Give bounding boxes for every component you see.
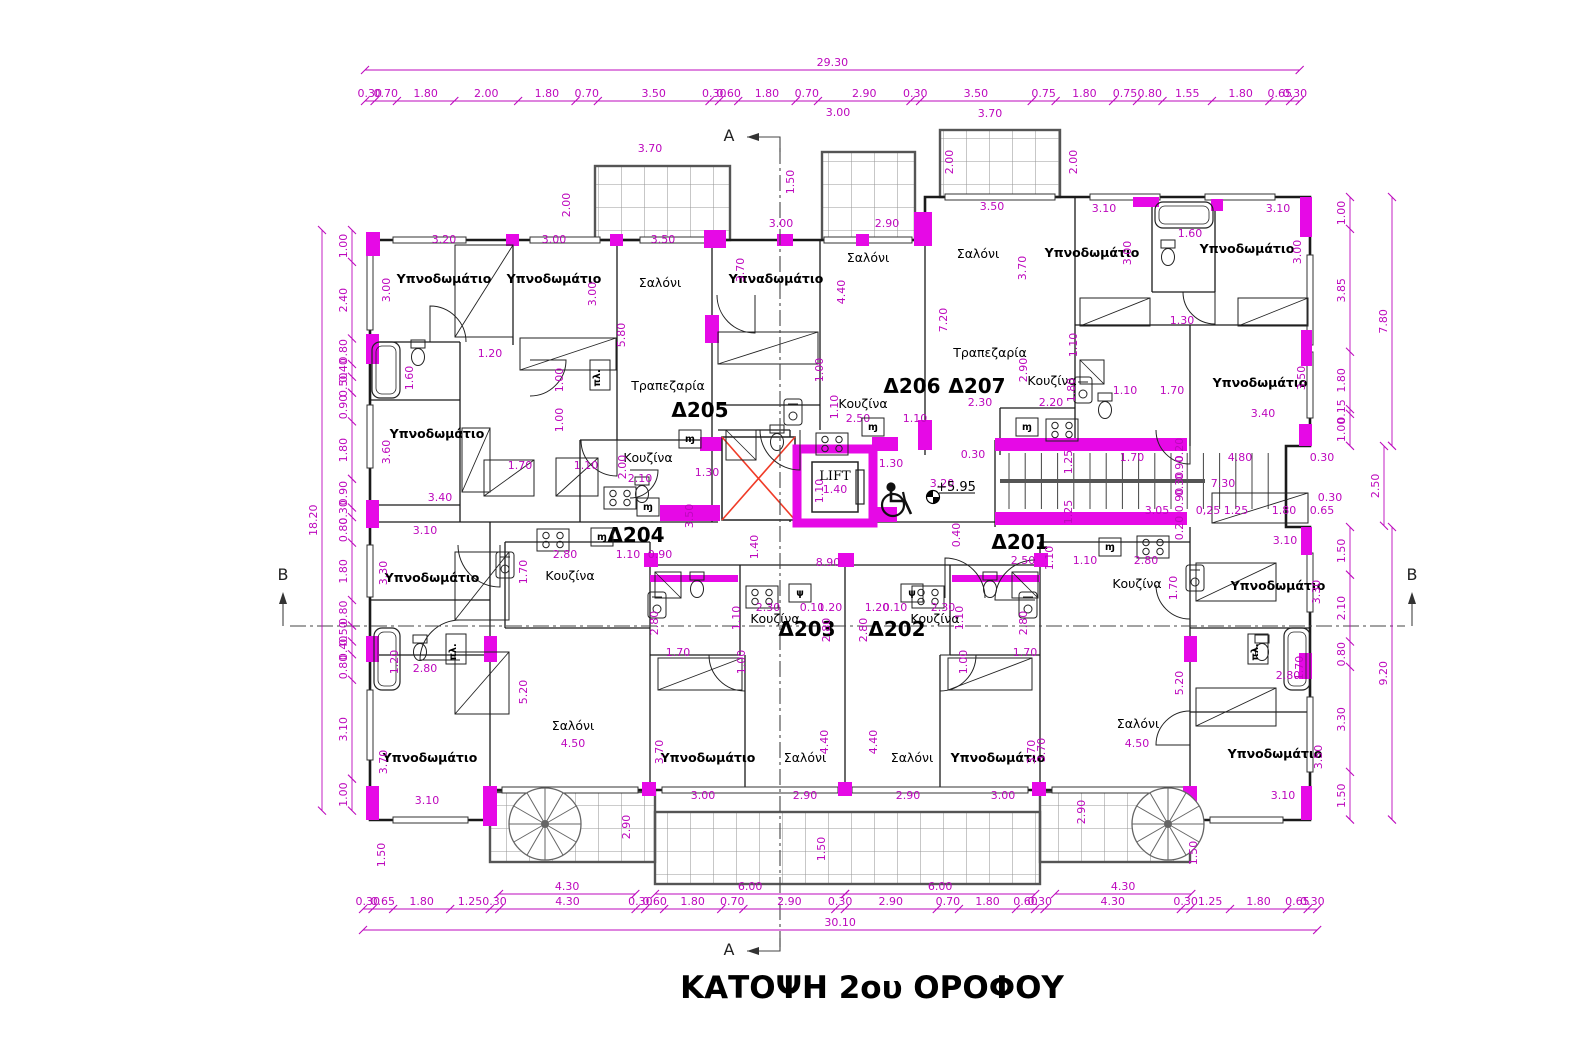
dimension-label: 1.70 (517, 560, 530, 585)
dimension-label: 4.40 (867, 730, 880, 755)
chain-dimension: 0.30 (1028, 895, 1053, 908)
dimension-label: 2.30 (968, 396, 993, 409)
dimension-label: 3.30 (1310, 580, 1323, 605)
chain-dimension: 0.70 (574, 87, 599, 100)
room-label: Υπνοδωμάτιο (382, 750, 478, 765)
chain-dimension: 3.50 (964, 87, 989, 100)
chain-dimension: 0.30 (482, 895, 507, 908)
dimension-label: 8.90 (816, 556, 841, 569)
dimension-label: 1.10 (574, 459, 599, 472)
chain-dimension: 1.00 (337, 234, 350, 259)
chain-dimension: 0.50 (337, 372, 350, 397)
dimension-label: 4.40 (818, 730, 831, 755)
dimension-label: 0.30 (961, 448, 986, 461)
chain-dimension: 1.25 (458, 895, 483, 908)
chain-dimension: 1.80 (680, 895, 705, 908)
chain-dimension: 0.60 (716, 87, 741, 100)
dimension-label: 2.80 (553, 548, 578, 561)
chain-dimension: 0.70 (936, 895, 961, 908)
dimension-label: 4.40 (835, 280, 848, 305)
dimension-label: 2.80 (413, 662, 438, 675)
room-label: Σαλόνι (957, 246, 999, 261)
fixture-glyph: ψ (908, 588, 916, 599)
dimension-label: 2.80 (857, 618, 870, 643)
dimension-label: 1.70 (1293, 656, 1306, 681)
dimension-label: 1.10 (1043, 546, 1056, 571)
chain-dimension: 0.70 (720, 895, 745, 908)
section-a-bottom-leader (747, 938, 780, 951)
balcony-bottom-middle (655, 812, 1040, 884)
dimension-label: 0.40 (950, 523, 963, 548)
unit-label: Δ204 (607, 523, 664, 547)
chain-dimension: 1.80 (535, 87, 560, 100)
dimension-label: 1.40 (748, 535, 761, 560)
dimension-label: 2.00 (943, 150, 956, 175)
room-label: Κουζίνα (1112, 576, 1161, 591)
chain-dimension: 2.10 (1335, 596, 1348, 621)
dimension-label: 1.10 (1113, 384, 1138, 397)
dimension-label: 1.60 (1178, 227, 1203, 240)
dimension-label: 1.50 (1187, 841, 1200, 866)
chain-dimension: 6.00 (738, 880, 763, 893)
chain-dimension: 3.85 (1335, 278, 1348, 303)
chain-dimension: 0.75 (1031, 87, 1056, 100)
dimension-label: 2.90 (875, 217, 900, 230)
dimension-label: 3.10 (1271, 789, 1296, 802)
dimension-label: 2.90 (793, 789, 818, 802)
chain-dimension: 1.80 (1072, 87, 1097, 100)
unit-label: Δ207 (948, 374, 1005, 398)
dimension-label: 5.80 (615, 323, 628, 348)
dimension-label: 3.00 (1291, 240, 1304, 265)
room-label: Τραπεζαρία (952, 345, 1027, 360)
chain-dimension: 1.55 (1175, 87, 1200, 100)
section-marker-b: B (1407, 565, 1418, 584)
dimension-label: 1.00 (553, 408, 566, 433)
dimension-label: 0.30 (1318, 491, 1343, 504)
chain-dimension: 1.00 (1335, 201, 1348, 226)
dimension-label: 1.10 (903, 412, 928, 425)
dimension-label: 7.20 (937, 308, 950, 333)
dimension-label: 1.50 (784, 170, 797, 195)
dimension-label: 3.00 (691, 789, 716, 802)
balcony-top-middle (822, 152, 915, 240)
chain-dimension: 4.30 (1100, 895, 1125, 908)
dimension-label: 3.00 (1121, 241, 1134, 266)
chain-dimension: 1.00 (337, 782, 350, 807)
dimension-label: 2.90 (1017, 358, 1030, 383)
fixture-glyph: πλ. (448, 643, 459, 660)
dimension-label: 1.20 (388, 650, 401, 675)
dimension-label: 0.20 (1173, 516, 1186, 541)
balcony-top-left (595, 166, 730, 240)
room-label: Υπνοδωμάτιο (389, 426, 485, 441)
chain-dimension: 0.80 (1335, 642, 1348, 667)
chain-dimension: 0.90 (337, 395, 350, 420)
room-label: Υπνοδωμάτιο (396, 271, 492, 286)
chain-dimension: 7.80 (1377, 309, 1390, 334)
dimension-label: 1.50 (375, 843, 388, 868)
chain-dimension: 18.20 (307, 505, 320, 537)
dimension-label: 3.50 (683, 504, 696, 529)
dimension-label: 2.80 (1134, 554, 1159, 567)
fixture-glyph: ɱ (597, 532, 607, 543)
dimension-label: 1.20 (478, 347, 503, 360)
dimension-label: 4.50 (561, 737, 586, 750)
chain-dimension: 0.80 (1137, 87, 1162, 100)
dimension-label: 3.70 (978, 107, 1003, 120)
dimension-label: 1.10 (730, 606, 743, 631)
chain-dimension: 3.30 (1335, 707, 1348, 732)
dimension-label: 4.50 (1125, 737, 1150, 750)
chain-dimension: 9.20 (1377, 661, 1390, 686)
chain-dimension: 0.70 (373, 87, 398, 100)
fixture-glyph: ɱ (643, 502, 653, 513)
dimension-label: 2.90 (620, 815, 633, 840)
dimension-label: 1.30 (695, 466, 720, 479)
section-marker-a: A (724, 126, 735, 145)
room-label: Κουζίνα (623, 450, 672, 465)
dimension-label: 1.25 (1224, 504, 1249, 517)
fixture-glyph: ɱ (1105, 542, 1115, 553)
dimension-label: 5.20 (517, 680, 530, 705)
chain-dimension: 0.80 (337, 518, 350, 543)
dimension-label: 1.00 (735, 650, 748, 675)
dimension-label: 1.80 (1272, 504, 1297, 517)
chain-dimension: 1.80 (413, 87, 438, 100)
dimension-label: 3.30 (377, 561, 390, 586)
chain-dimension: 1.00 (1335, 418, 1348, 443)
chain-dimension: 0.60 (642, 895, 667, 908)
dimension-label: 1.70 (1120, 451, 1145, 464)
drawing-sheet: 29.300.300.701.802.001.800.703.500.300.6… (0, 0, 1595, 1045)
dimension-label: 3.70 (653, 740, 666, 765)
dimension-label: 1.10 (616, 548, 641, 561)
dimension-label: 3.70 (377, 750, 390, 775)
chain-dimension: 4.30 (555, 880, 580, 893)
dimension-label: 3.00 (380, 278, 393, 303)
chain-dimension: 1.80 (1335, 368, 1348, 393)
drawing-title: ΚΑΤΟΨΗ 2ου ΟΡΟΦΟΥ (680, 970, 1064, 1006)
chain-dimension: 4.30 (1111, 880, 1136, 893)
dimension-label: 2.80 (1017, 611, 1030, 636)
dimension-label: 7.30 (1211, 477, 1236, 490)
dimension-label: 1.50 (815, 837, 828, 862)
dimension-label: 1.25 (1062, 450, 1075, 475)
room-label: Υπνοδωμάτιο (384, 570, 480, 585)
section-marker-a: A (724, 940, 735, 959)
dimension-label: 3.10 (413, 524, 438, 537)
dimension-label: 3.50 (980, 200, 1005, 213)
chain-dimension: 0.75 (1113, 87, 1138, 100)
dimension-label: 3.70 (734, 258, 747, 283)
dimension-label: 3.00 (991, 789, 1016, 802)
room-label: Κουζίνα (545, 568, 594, 583)
room-label: Σαλόνι (639, 275, 681, 290)
dimension-label: 2.80 (648, 611, 661, 636)
chain-dimension: 2.50 (1369, 474, 1382, 499)
floor-plan-svg: 29.300.300.701.802.001.800.703.500.300.6… (0, 0, 1595, 1045)
dimension-label: 2.90 (1075, 800, 1088, 825)
fixture-glyph: ɱ (685, 434, 695, 445)
dimension-label: 3.60 (380, 440, 393, 465)
chain-dimension: 0.30 (828, 895, 853, 908)
dimension-label: 3.10 (1092, 202, 1117, 215)
fixture-glyph: πλ. (1250, 643, 1261, 660)
dimension-label: 2.90 (896, 789, 921, 802)
chain-dimension: 1.80 (975, 895, 1000, 908)
level-value: +5.95 (936, 480, 976, 495)
dimension-label: 3.70 (1035, 738, 1048, 763)
dimension-label: 1.70 (1160, 384, 1185, 397)
dimension-label: 1.30 (1170, 314, 1195, 327)
dimension-label: 2.00 (1067, 150, 1080, 175)
chain-dimension: 0.65 (371, 895, 396, 908)
room-label: Κουζίνα (838, 396, 887, 411)
room-label: Σαλόνι (847, 250, 889, 265)
room-label: Υπνοδωμάτιο (660, 750, 756, 765)
dimension-label: 2.10 (628, 472, 653, 485)
dimension-label: 1.00 (553, 368, 566, 393)
chain-dimension: 0.70 (795, 87, 820, 100)
lift-dimension: 1.40 (823, 483, 848, 496)
dimension-label: 0,25 (1196, 504, 1221, 517)
chain-dimension: 1.80 (409, 895, 434, 908)
dimension-label: 1.00 (813, 358, 826, 383)
chain-dimension: 1.50 (1335, 783, 1348, 808)
dimension-label: 1.10 (828, 395, 841, 420)
chain-dimension: 0.80 (337, 655, 350, 680)
dimension-label: 1.10 (1073, 554, 1098, 567)
chain-dimension: 4.30 (555, 895, 580, 908)
unit-label: Δ206 (883, 374, 940, 398)
section-a-top-leader (747, 137, 780, 152)
dimension-label: 1.70 (1167, 576, 1180, 601)
fixture-glyph: ψ (796, 588, 804, 599)
chain-dimension: 2.90 (852, 87, 877, 100)
chain-dimension: 6.00 (928, 880, 953, 893)
dimension-label: 1.80 (1065, 378, 1078, 403)
dimension-label: 0.90 (1173, 488, 1186, 513)
chain-dimension: 2.90 (879, 895, 904, 908)
room-label: Υπνοδωμάτιο (1227, 746, 1323, 761)
dimension-label: 1.10 (1067, 333, 1080, 358)
dimension-label: 4.80 (1228, 451, 1253, 464)
dimension-label: 2.00 (560, 193, 573, 218)
dimension-label: 1.30 (879, 457, 904, 470)
chain-dimension: 1.25 (1198, 895, 1223, 908)
lift-label: LIFT (819, 469, 851, 484)
dimension-label: 3.10 (1266, 202, 1291, 215)
chain-dimension: 0.30 (1283, 87, 1308, 100)
chain-dimension: 1.80 (337, 559, 350, 584)
chain-dimension: 1.50 (1335, 539, 1348, 564)
dimension-label: 1.60 (403, 366, 416, 391)
dimension-label: 3.00 (586, 282, 599, 307)
chain-dimension: 3.10 (337, 717, 350, 742)
unit-label: Δ201 (991, 530, 1048, 554)
room-label: Σαλόνι (552, 718, 594, 733)
chain-dimension: 29.30 (817, 56, 849, 69)
chain-dimension: 0.30 (1300, 895, 1325, 908)
section-marker-b: B (278, 565, 289, 584)
unit-label: Δ205 (671, 398, 728, 422)
dimension-label: 3.50 (1312, 745, 1325, 770)
fixture-glyph: ɱ (868, 422, 878, 433)
dimension-label: 3.40 (1251, 407, 1276, 420)
dimension-label: 1.70 (666, 646, 691, 659)
dimension-label: 3.70 (638, 142, 663, 155)
chain-dimension: 1.80 (1246, 895, 1271, 908)
dimension-label: 1.00 (957, 650, 970, 675)
chain-dimension: 0.30 (1173, 895, 1198, 908)
dimension-label: 0.10 (883, 601, 908, 614)
room-label: Τραπεζαρία (630, 378, 705, 393)
dimension-label: 2.30 (756, 601, 781, 614)
chain-dimension: 1.80 (755, 87, 780, 100)
dimension-label: 2.20 (1039, 396, 1064, 409)
dimension-label: 3.00 (542, 233, 567, 246)
balcony-top-right (940, 130, 1060, 197)
dimension-label: 1.20 (818, 601, 843, 614)
dimension-label: 3.10 (1273, 534, 1298, 547)
chain-dimension: 1.80 (1228, 87, 1253, 100)
room-label: Υπνοδωμάτιο (1212, 375, 1308, 390)
dimension-label: 1.10 (953, 606, 966, 631)
dimension-label: 3.50 (1295, 366, 1308, 391)
dimension-label: 1.70 (508, 459, 533, 472)
dimension-label: 2.80 (820, 618, 833, 643)
chain-dimension: 30.10 (824, 916, 856, 929)
fixture-glyph: ɱ (1022, 422, 1032, 433)
dimension-label: 3.50 (651, 233, 676, 246)
dimension-label: 3.00 (826, 106, 851, 119)
dimension-label: 2.30 (931, 601, 956, 614)
room-label: Σαλόνι (1117, 716, 1159, 731)
chain-dimension: 0.30 (903, 87, 928, 100)
chain-dimension: 2.90 (777, 895, 802, 908)
dimension-label: 3.00 (769, 217, 794, 230)
dimension-label: 1.25 (1062, 500, 1075, 525)
dimension-label: 3.20 (432, 233, 457, 246)
dimension-label: 3.05 (1145, 504, 1170, 517)
room-label: Σαλόνι (891, 750, 933, 765)
dimension-label: 0.90 (648, 548, 673, 561)
dimension-label: 3.10 (415, 794, 440, 807)
dimension-label: 2.50 (1011, 554, 1036, 567)
dimension-label: 0.65 (1310, 504, 1335, 517)
room-label: Υπνοδωμάτιο (1199, 241, 1295, 256)
light-well (722, 437, 795, 520)
chain-dimension: 2.40 (337, 288, 350, 313)
chain-dimension: 3.50 (641, 87, 666, 100)
dimension-label: 2.00 (616, 455, 629, 480)
chain-dimension: 2.00 (474, 87, 499, 100)
dimension-label: 0.30 (1310, 451, 1335, 464)
dimension-label: 1.70 (1013, 646, 1038, 659)
dimension-label: 5.20 (1173, 671, 1186, 696)
fixture-glyph: πλ. (592, 369, 603, 386)
dimension-label: 3.70 (1016, 256, 1029, 281)
dimension-label: 3.40 (428, 491, 453, 504)
chain-dimension: 1.80 (337, 438, 350, 463)
